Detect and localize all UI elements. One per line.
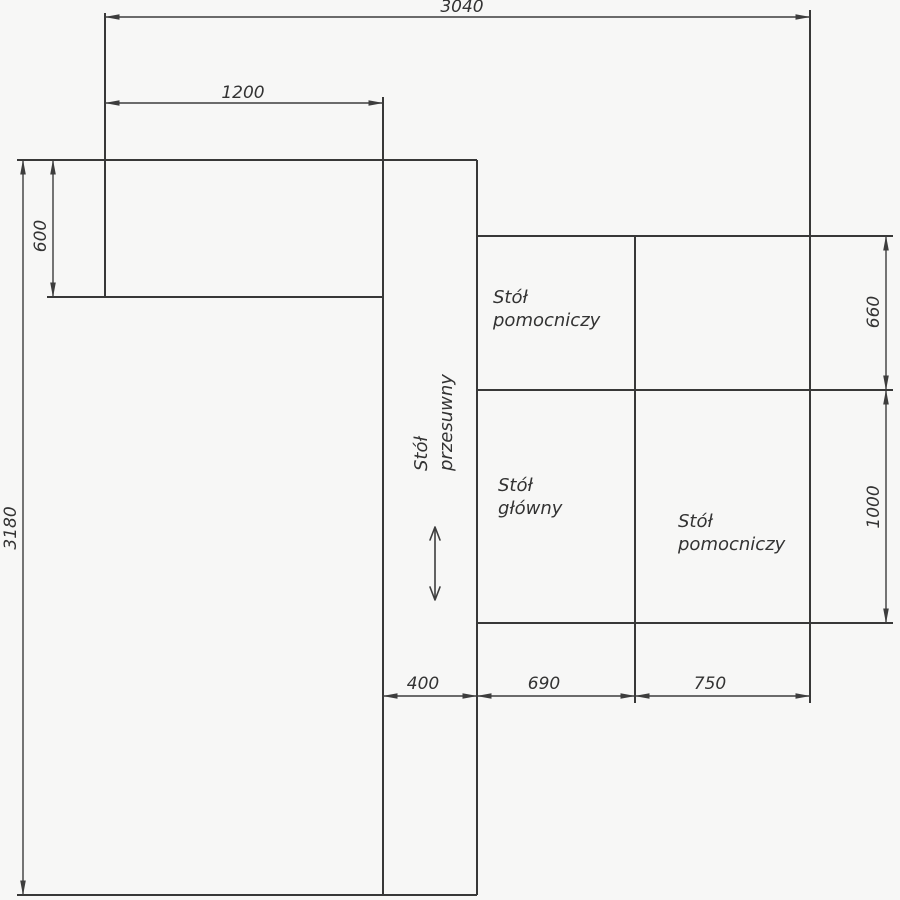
label-aux-top-line2: pomocniczy [492, 310, 601, 331]
label-main-line2: główny [498, 498, 563, 519]
table-labels: Stół pomocniczy Stół główny Stół pomocni… [411, 287, 786, 555]
sliding-motion-arrow-icon [430, 527, 440, 600]
dim-value-left-table-height: 600 [31, 220, 51, 252]
label-aux-right-line1: Stół [678, 511, 713, 532]
label-aux-top-line1: Stół [493, 287, 528, 308]
dim-value-total-width: 3040 [440, 0, 483, 17]
table-layout-plan-svg: 3040 1200 600 3180 660 1000 400 690 750 … [0, 0, 900, 900]
dim-value-sliding-table-width: 400 [407, 674, 439, 694]
dim-value-aux-top-height: 660 [864, 296, 884, 328]
dim-value-main-table-width: 690 [528, 674, 560, 694]
label-aux-right-line2: pomocniczy [677, 534, 786, 555]
label-sliding-line2: przesuwny [436, 374, 457, 472]
technical-drawing-canvas: 3040 1200 600 3180 660 1000 400 690 750 … [0, 0, 900, 900]
dim-value-main-table-height: 1000 [864, 485, 884, 528]
label-main-line1: Stół [498, 475, 533, 496]
dimension-texts: 3040 1200 600 3180 660 1000 400 690 750 [1, 0, 884, 694]
dim-value-aux-right-width: 750 [694, 674, 726, 694]
dim-value-left-table-width: 1200 [221, 83, 264, 103]
label-sliding-line1: Stół [411, 436, 432, 471]
dim-value-total-height: 3180 [1, 506, 21, 549]
